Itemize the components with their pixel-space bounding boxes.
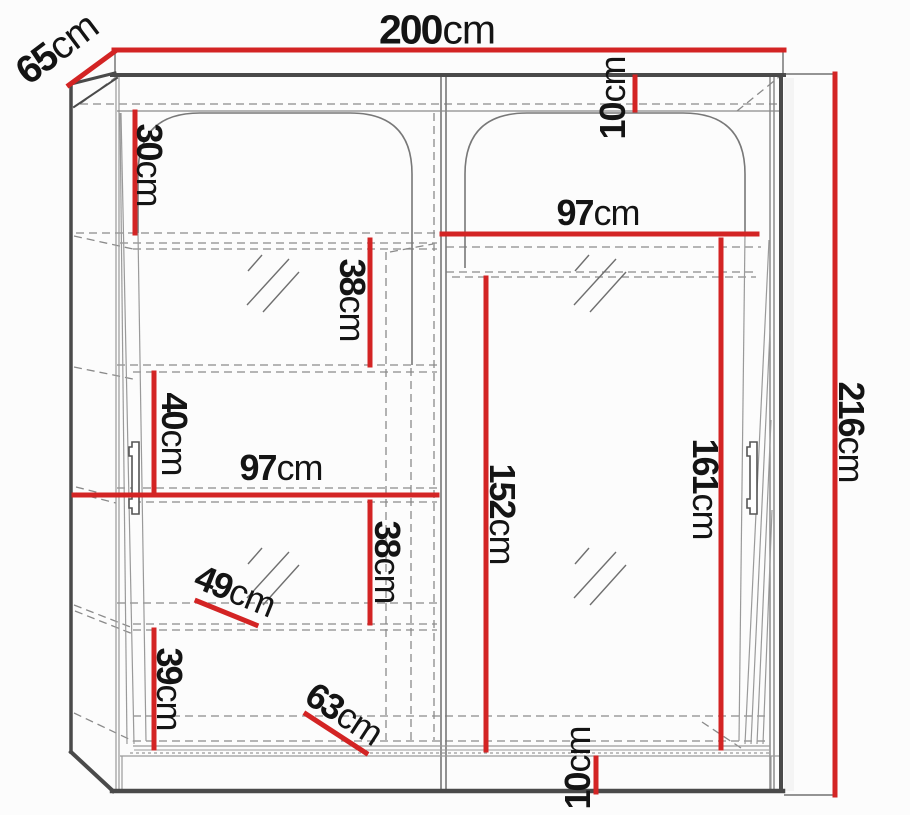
left-door-handle [129,442,139,514]
mirror-marks [247,255,626,605]
dim-line-63 [306,714,366,753]
dim-line-49 [197,601,256,625]
wardrobe-dimension-diagram: 200cm 65cm 30cm 10cm 97cm 38cm 40cm 97cm… [0,0,910,815]
door-handles [129,442,757,514]
door-and-interior-lines [115,51,783,790]
cabinet-outline [71,73,784,791]
dimension-lines [69,50,835,795]
diagram-canvas [0,0,910,815]
right-door-handle [747,442,757,514]
hidden-depth-lines [74,77,779,748]
cabinet-shadow [784,78,794,791]
